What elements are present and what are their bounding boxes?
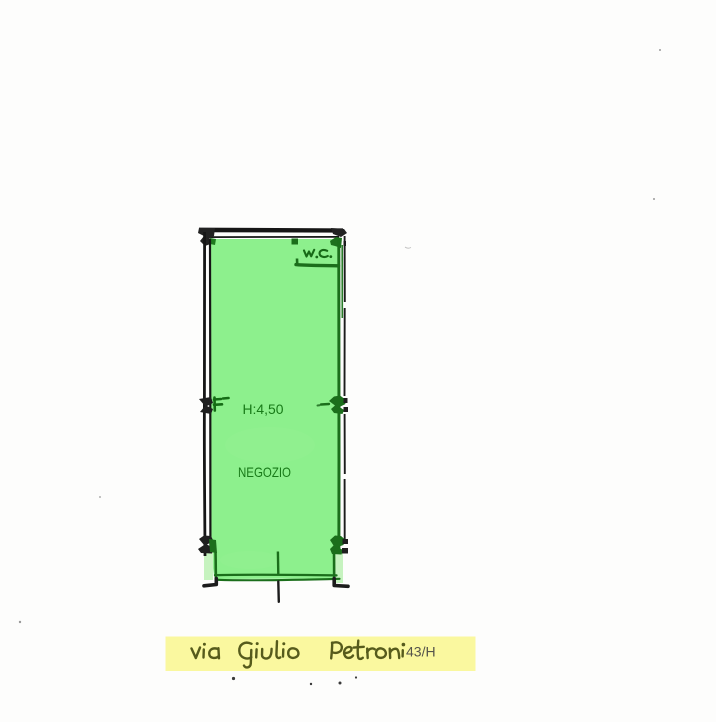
svg-text:H:4,50: H:4,50 xyxy=(243,401,284,417)
svg-text:NEGOZIO: NEGOZIO xyxy=(238,464,291,480)
svg-text:43/H: 43/H xyxy=(406,644,436,660)
